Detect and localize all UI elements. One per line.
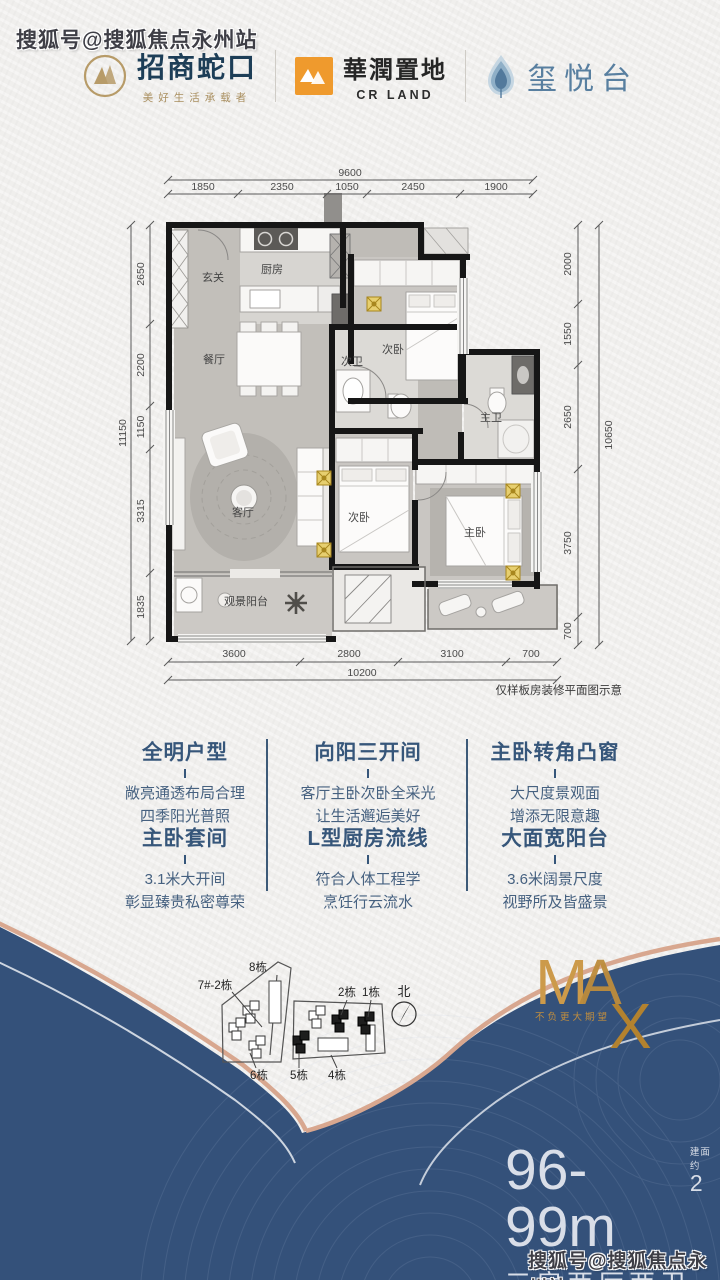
feature-title: 向阳三开间: [268, 735, 468, 765]
dim-top-3: 2450: [401, 181, 425, 193]
feature-tick: [554, 769, 556, 778]
watermark-bottom: 搜狐号@搜狐焦点永州站: [528, 1246, 720, 1280]
room-label-balcony: 观景阳台: [224, 594, 268, 608]
area-row: 96-99m 建面约 2: [505, 1142, 720, 1256]
max-logo: M A X 不负更大期望: [533, 936, 693, 1054]
building-bar-8: [269, 981, 281, 1023]
label-b6: 6栋: [250, 1068, 268, 1082]
feature-line: 客厅主卧次卧全采光: [268, 783, 468, 806]
dim-top-2: 1050: [335, 181, 359, 193]
label-b4: 4栋: [328, 1068, 346, 1082]
dim-bottom-total: 10200: [347, 667, 376, 679]
dim-left-0: 2650: [135, 262, 147, 286]
dim-top-1: 2350: [270, 181, 294, 193]
feature-tick: [184, 769, 186, 778]
label-b5: 5栋: [290, 1068, 308, 1082]
label-b7: 7#-2栋: [198, 978, 233, 992]
brand-crland-sub: CR LAND: [356, 88, 433, 102]
dim-left-2: 1150: [135, 416, 147, 439]
brand-xiyuetai-name: 玺悦台: [527, 54, 638, 98]
area-range: 96-99m: [505, 1142, 690, 1256]
feature-line: 大尺度景观面: [455, 783, 655, 806]
feature-tick: [367, 855, 369, 864]
room-label-bath1: 主卫: [480, 411, 502, 424]
dim-right-2: 2650: [562, 405, 574, 429]
brand-cmsk: 招商蛇口 美好生活承载者: [82, 46, 257, 105]
label-north: 北: [397, 984, 410, 999]
dim-right-0: 2000: [562, 252, 574, 276]
feature-cell: 向阳三开间 客厅主卧次卧全采光 让生活邂逅美好: [268, 735, 468, 828]
dim-top-4: 1900: [484, 181, 508, 193]
poster-page: 招商蛇口 美好生活承载者 華潤置地 CR LAND: [0, 0, 720, 1280]
floorplan: 玄关 厨房 餐厅 次卫 次卧 主卫 客厅 次卧 主卧 观景阳台 9600 185…: [0, 160, 720, 720]
dim-bottom-1: 2800: [337, 648, 361, 660]
brand-xiyuetai: 玺悦台: [484, 53, 638, 99]
dim-top-total: 9600: [338, 167, 362, 179]
dim-left-1: 2200: [135, 353, 147, 377]
dim-bottom-2: 3100: [440, 648, 464, 660]
north-compass: [392, 1001, 416, 1026]
feature-line: 符合人体工程学: [268, 869, 468, 892]
label-b8: 8栋: [249, 960, 267, 974]
header-divider: [275, 50, 276, 102]
feature-tick: [367, 769, 369, 778]
feature-cell: 大面宽阳台 3.6米阔景尺度 视野所及皆盛景: [455, 821, 655, 914]
feature-title: L型厨房流线: [268, 821, 468, 851]
watermark-top: 搜狐号@搜狐焦点永州站: [16, 24, 257, 54]
feature-cell: L型厨房流线 符合人体工程学 烹饪行云流水: [268, 821, 468, 914]
area-superscript: 2: [690, 1172, 703, 1195]
room-label-kitchen: 厨房: [261, 263, 283, 276]
feature-cell: 全明户型 敞亮通透布局合理 四季阳光普照: [85, 735, 285, 828]
room-label-bed2b: 次卧: [348, 510, 370, 524]
cmsk-logo-icon: [82, 53, 128, 99]
feature-cell: 主卧套间 3.1米大开间 彰显臻贵私密尊荣: [85, 821, 285, 914]
building-bar-4: [318, 1038, 348, 1051]
dim-bottom-3: 700: [522, 648, 540, 660]
max-slogan: 不负更大期望: [535, 1011, 610, 1023]
feature-tick: [184, 855, 186, 864]
feature-title: 大面宽阳台: [455, 821, 655, 851]
feature-title: 主卧套间: [85, 821, 285, 851]
room-label-bed1: 主卧: [464, 526, 486, 539]
dim-right-1: 1550: [562, 322, 574, 346]
max-letter-x: X: [609, 990, 652, 1054]
label-b2: 2栋: [338, 985, 356, 999]
dim-left-4: 1835: [135, 595, 147, 619]
dim-left-total: 11150: [117, 419, 129, 447]
dim-right-4: 700: [562, 622, 574, 640]
brand-header: 招商蛇口 美好生活承载者 華潤置地 CR LAND: [0, 46, 720, 105]
dim-bottom-0: 3600: [222, 648, 246, 660]
dim-left-3: 3315: [135, 499, 147, 523]
dim-right-total: 10650: [603, 420, 615, 449]
feature-tick: [554, 855, 556, 864]
feature-line: 3.6米阔景尺度: [455, 869, 655, 892]
room-label-entry: 玄关: [202, 270, 224, 284]
xiyuetai-logo-icon: [484, 53, 518, 99]
room-label-bath2: 次卫: [341, 354, 363, 368]
brand-crland-name: 華潤置地: [343, 50, 447, 85]
header-divider: [465, 50, 466, 102]
crland-logo-icon: [294, 56, 334, 96]
floorplan-caption: 仅样板房装修平面图示意: [496, 683, 623, 697]
room-label-dining: 餐厅: [203, 352, 225, 366]
siteplan-labels: 8栋 7#-2栋 2栋 1栋 6栋 5栋 4栋 北: [198, 960, 411, 1082]
brand-crland: 華潤置地 CR LAND: [294, 50, 447, 102]
feature-line: 敞亮通透布局合理: [85, 783, 285, 806]
room-label-living: 客厅: [232, 505, 254, 519]
room-label-bed2a: 次卧: [382, 342, 404, 356]
feature-line: 3.1米大开间: [85, 869, 285, 892]
feature-title: 全明户型: [85, 735, 285, 765]
dim-right-3: 3750: [562, 531, 574, 555]
label-b1: 1栋: [362, 985, 380, 999]
dim-top-0: 1850: [191, 181, 215, 193]
area-unit-label: 建面约: [690, 1144, 720, 1172]
feature-cell: 主卧转角凸窗 大尺度景观面 增添无限意趣: [455, 735, 655, 828]
brand-cmsk-tagline: 美好生活承载者: [143, 90, 252, 105]
feature-title: 主卧转角凸窗: [455, 735, 655, 765]
